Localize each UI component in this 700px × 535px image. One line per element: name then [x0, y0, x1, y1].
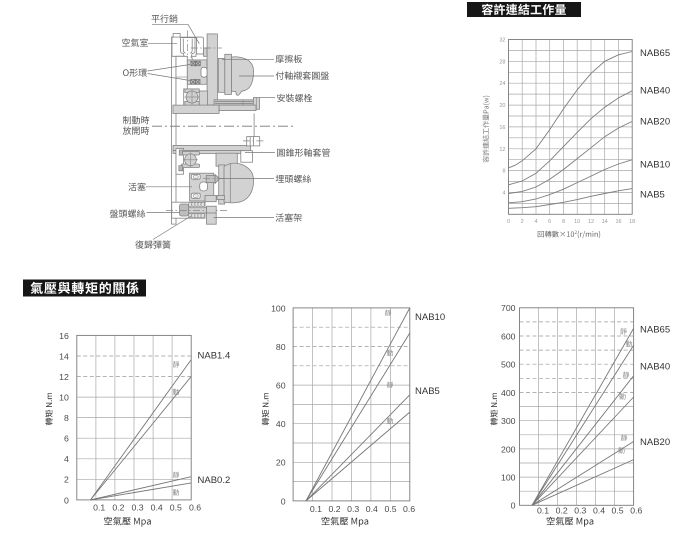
svg-text:2: 2 — [64, 475, 69, 485]
svg-text:0.3: 0.3 — [347, 504, 359, 514]
svg-text:500: 500 — [501, 360, 516, 370]
svg-text:0.4: 0.4 — [593, 506, 605, 516]
svg-text:0.3: 0.3 — [131, 503, 143, 513]
svg-text:700: 700 — [501, 303, 516, 313]
svg-text:28: 28 — [499, 59, 505, 65]
svg-text:NAB20: NAB20 — [640, 117, 670, 128]
svg-text:0.1: 0.1 — [310, 504, 322, 514]
svg-text:100: 100 — [501, 473, 516, 483]
svg-text:0.2: 0.2 — [328, 504, 340, 514]
svg-text:300: 300 — [501, 416, 516, 426]
svg-text:6: 6 — [64, 434, 69, 444]
svg-text:2: 2 — [521, 219, 524, 225]
svg-text:0.4: 0.4 — [151, 503, 163, 513]
svg-text:24: 24 — [499, 81, 505, 87]
svg-text:10: 10 — [574, 219, 580, 225]
svg-text:0.2: 0.2 — [556, 506, 568, 516]
svg-text:0: 0 — [281, 496, 286, 506]
svg-text:18: 18 — [629, 219, 635, 225]
svg-text:NAB10: NAB10 — [640, 160, 670, 171]
svg-text:12: 12 — [499, 147, 505, 153]
svg-text:6: 6 — [548, 219, 551, 225]
svg-text:NAB10: NAB10 — [415, 312, 445, 323]
svg-text:8: 8 — [502, 169, 505, 175]
svg-text:0: 0 — [511, 501, 516, 511]
svg-text:0: 0 — [64, 495, 69, 505]
svg-text:8: 8 — [64, 413, 69, 423]
svg-text:NAB65: NAB65 — [640, 48, 670, 59]
svg-text:600: 600 — [501, 331, 516, 341]
svg-text:10: 10 — [59, 393, 69, 403]
svg-text:0.6: 0.6 — [403, 504, 415, 514]
svg-text:0.1: 0.1 — [537, 506, 549, 516]
svg-text:80: 80 — [276, 342, 286, 352]
svg-text:0.4: 0.4 — [366, 504, 378, 514]
svg-text:NAB20: NAB20 — [640, 437, 670, 448]
svg-text:20: 20 — [276, 458, 286, 468]
svg-text:NAB1.4: NAB1.4 — [198, 351, 231, 362]
svg-text:60: 60 — [276, 381, 286, 391]
svg-text:0.6: 0.6 — [189, 503, 201, 513]
svg-text:12: 12 — [588, 219, 594, 225]
svg-text:NAB5: NAB5 — [415, 386, 440, 397]
svg-text:0.5: 0.5 — [612, 506, 624, 516]
svg-text:0.6: 0.6 — [630, 506, 642, 516]
svg-text:NAB65: NAB65 — [640, 325, 670, 336]
svg-text:14: 14 — [59, 351, 69, 361]
svg-text:0: 0 — [507, 219, 510, 225]
svg-text:NAB40: NAB40 — [640, 362, 670, 373]
svg-text:20: 20 — [499, 103, 505, 109]
svg-text:0.5: 0.5 — [170, 503, 182, 513]
svg-text:4: 4 — [64, 454, 69, 464]
svg-text:40: 40 — [276, 419, 286, 429]
svg-text:0.3: 0.3 — [574, 506, 586, 516]
svg-text:200: 200 — [501, 444, 516, 454]
svg-text:16: 16 — [615, 219, 621, 225]
svg-text:0.2: 0.2 — [112, 503, 124, 513]
svg-text:12: 12 — [59, 372, 69, 382]
svg-text:4: 4 — [502, 191, 505, 197]
svg-text:NAB0.2: NAB0.2 — [198, 475, 231, 486]
svg-text:16: 16 — [499, 125, 505, 131]
svg-text:100: 100 — [271, 303, 286, 313]
svg-text:8: 8 — [562, 219, 565, 225]
svg-text:400: 400 — [501, 388, 516, 398]
svg-text:16: 16 — [59, 331, 69, 341]
svg-text:14: 14 — [602, 219, 608, 225]
svg-text:32: 32 — [499, 38, 505, 44]
svg-text:NAB5: NAB5 — [640, 190, 665, 201]
svg-text:0.5: 0.5 — [384, 504, 396, 514]
svg-text:NAB40: NAB40 — [640, 86, 670, 97]
svg-text:4: 4 — [534, 219, 537, 225]
svg-text:0.1: 0.1 — [93, 503, 105, 513]
